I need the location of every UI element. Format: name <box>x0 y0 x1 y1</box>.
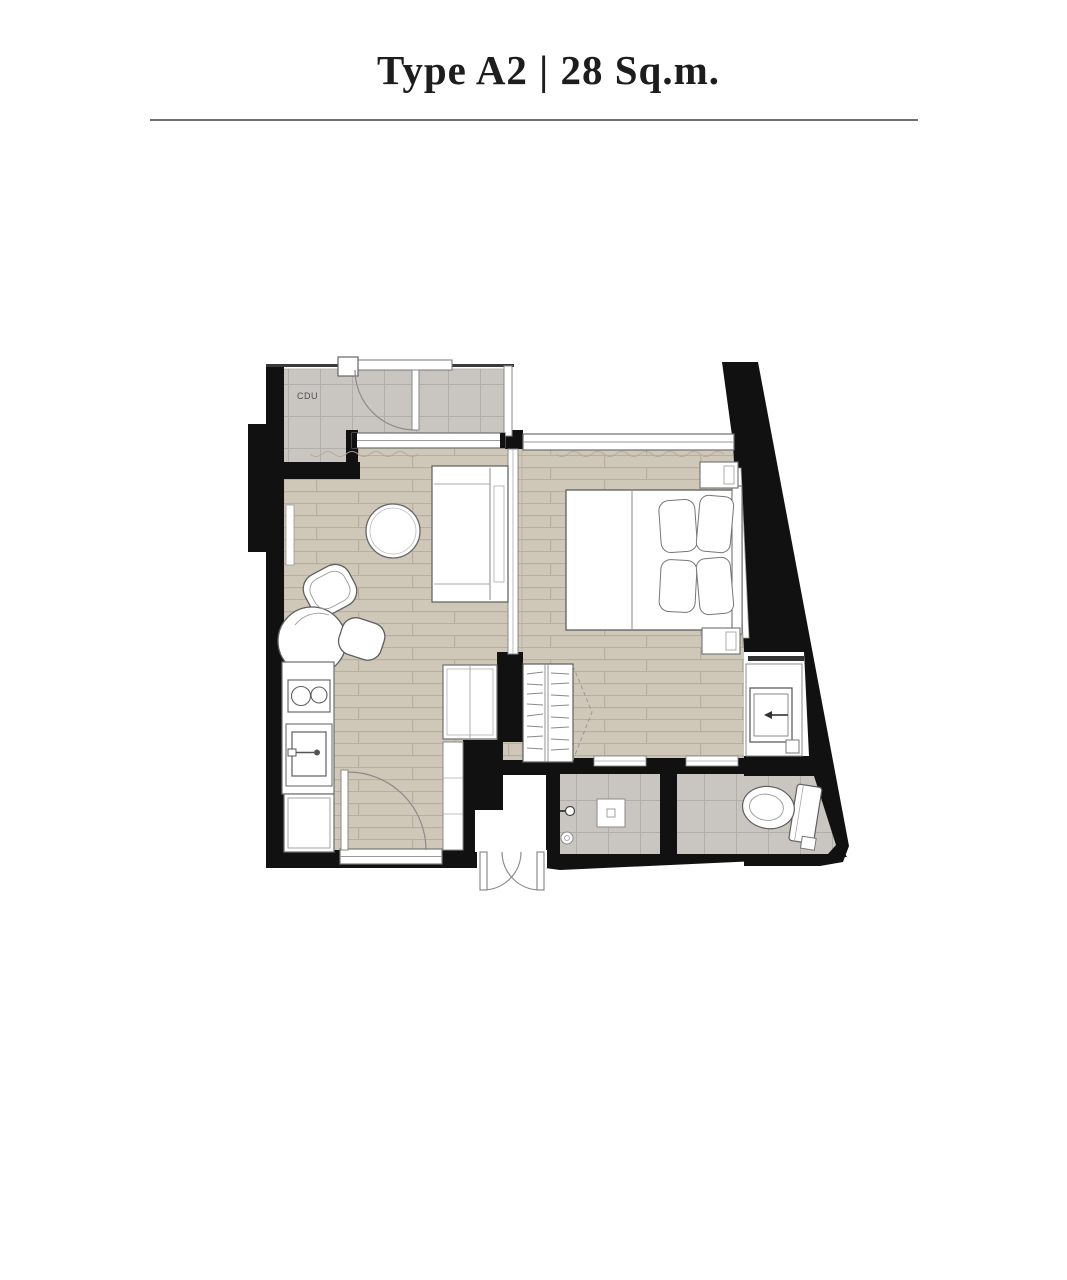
floor-drain-icon <box>561 832 573 844</box>
bed <box>566 486 742 634</box>
kitchen-sink <box>286 724 332 786</box>
floor-plan-drawing: CDU <box>0 0 1067 1280</box>
cdu-label: CDU <box>297 391 318 401</box>
stove <box>288 680 330 712</box>
shower-tray <box>597 799 625 827</box>
cdu-unit: CDU <box>297 391 318 401</box>
nightstand-bottom <box>702 628 740 654</box>
floor-plan: CDU <box>0 0 1067 1280</box>
vanity <box>744 652 809 756</box>
refrigerator <box>284 794 334 852</box>
shoe-cabinet <box>443 742 463 850</box>
tv-cabinet <box>443 665 497 739</box>
bedroom-window <box>523 434 734 450</box>
sliding-partition <box>508 449 518 654</box>
dining-table <box>366 504 420 558</box>
wall-shelf <box>286 505 294 565</box>
nightstand-top <box>700 462 738 488</box>
sofa <box>432 466 508 602</box>
floor-plan-page: Type A2 | 28 Sq.m. <box>0 0 1067 1280</box>
living-window <box>352 433 505 448</box>
kitchen-window <box>340 849 442 864</box>
